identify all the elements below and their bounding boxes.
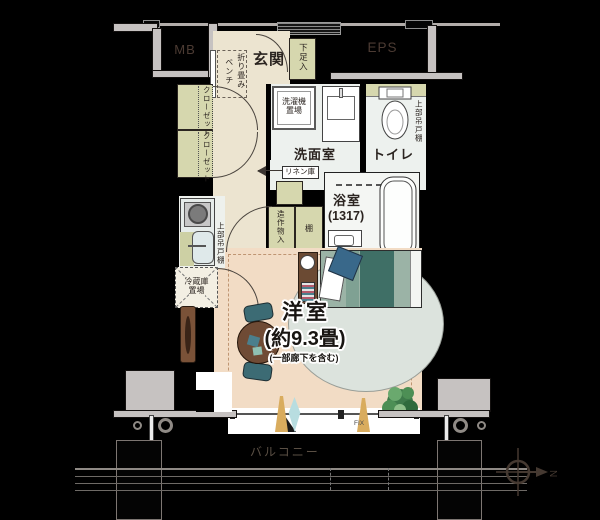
window-mullion — [338, 410, 344, 419]
wall-segment — [266, 84, 271, 160]
bathroom-size-label: (1317) — [328, 210, 364, 224]
room-name-label: 洋室 — [268, 300, 344, 326]
left-wall-fixture-handle — [185, 316, 191, 354]
drain-small-right — [477, 421, 486, 430]
stove-burner-icon — [188, 204, 208, 224]
floor-plan: MB EPS 折り畳み ベンチ 玄関 下足入 クローゼット クローゼット 洗濯機… — [0, 0, 600, 520]
drain-small-left — [133, 421, 142, 430]
fix-window-label: FIX — [354, 420, 364, 427]
compass-north-label: N — [547, 470, 558, 477]
wall-segment — [330, 72, 463, 80]
washroom-door-arrow-head — [252, 166, 266, 176]
drain-ring-left — [158, 418, 173, 433]
pillar-bottom-right — [437, 378, 491, 412]
builtin-storage-label: 造作物入 — [276, 210, 284, 244]
bathroom-label: 浴室 — [333, 194, 361, 208]
balcony-wall-left — [116, 440, 162, 520]
closet-rail-dots — [198, 86, 199, 128]
unit-corner-step-cut — [196, 390, 214, 412]
railing-line — [75, 490, 527, 491]
washroom-label: 洗面室 — [294, 148, 336, 162]
closet-rail-dots — [198, 132, 199, 176]
balcony-slab-right — [378, 410, 490, 418]
compass-icon: N — [488, 440, 568, 506]
drain-ring-right — [453, 418, 468, 433]
pillar-bottom-left — [125, 370, 175, 412]
lamp-icon — [300, 255, 315, 270]
balcony-label: バルコニー — [250, 446, 320, 459]
washer-label: 洗濯機 置場 — [272, 94, 316, 120]
balcony-joint-dash — [388, 468, 389, 490]
meter-box-label: MB — [162, 32, 208, 68]
toilet-label: トイレ — [372, 148, 414, 162]
shelf-label: 棚 — [295, 206, 323, 252]
closet-lower-label: クローゼット — [202, 132, 210, 183]
bed-mattress-edge — [410, 251, 421, 307]
folding-bench-label-1: 折り畳み — [236, 53, 245, 89]
books-icon — [301, 282, 315, 302]
bathtub-icon — [378, 175, 418, 259]
kitchen-upper-cabinet-label: 上部吊戸棚 — [216, 222, 224, 265]
railing-line — [75, 468, 527, 470]
folding-bench-label-2: ベンチ — [224, 58, 233, 85]
vanity-sink — [327, 96, 355, 120]
linen-closet — [276, 181, 303, 205]
railing-line — [75, 476, 527, 477]
balcony-joint-dash — [330, 468, 331, 490]
toilet-upper-cabinet-label: 上部吊戸棚 — [414, 100, 422, 143]
closet-upper-label: クローゼット — [202, 86, 210, 137]
fridge-label: 冷蔵庫 置場 — [175, 272, 218, 302]
balcony-wall-right — [437, 440, 482, 520]
eps-label: EPS — [338, 30, 427, 66]
kitchen-faucet — [188, 245, 206, 247]
railing-line — [75, 483, 527, 484]
kitchen-sink — [192, 231, 214, 264]
room-size-label: (約9.3畳) — [250, 326, 360, 352]
shoe-box-label: 下足入 — [298, 43, 307, 72]
vanity-faucet — [339, 88, 343, 98]
bed-blanket-band — [360, 251, 394, 307]
linen-label: リネン庫 — [285, 168, 315, 176]
toilet-fixture-icon — [372, 86, 418, 144]
room-note-label: (一部廊下を含む) — [254, 352, 354, 365]
bath-counter-inner — [334, 235, 354, 246]
